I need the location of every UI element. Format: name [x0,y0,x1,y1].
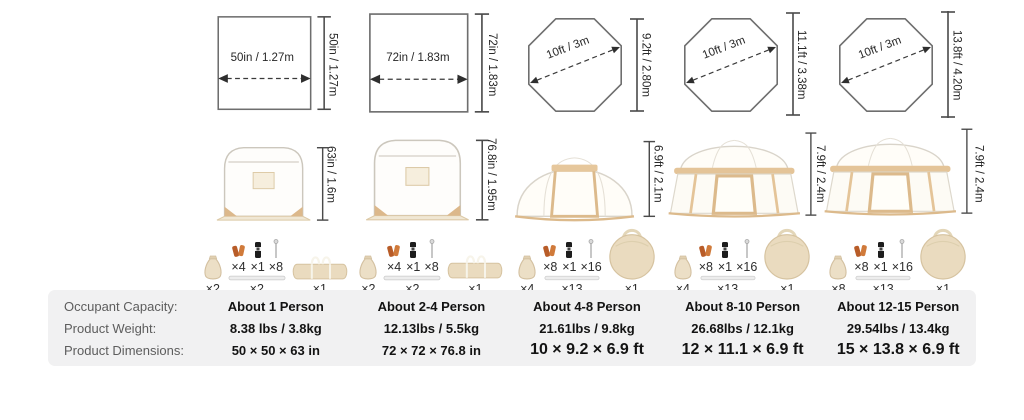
connector-icon [876,241,886,259]
square-footprint-drawing [365,10,497,120]
tent-image-2: 76.8in / 1.95m [354,122,509,226]
stakes-item: ×4 [386,243,402,274]
dome-tent-drawing [511,132,663,224]
footprint-diagram-4: 10ft / 3m 11.1ft / 3.38m [665,8,820,122]
stakes-qty: ×8 [543,260,557,274]
footprint-diagram-1: 50in / 1.27m 50in / 1.27m [198,8,353,122]
pole-icon [855,275,911,281]
tent-height-label: 6.9ft / 2.1m [651,122,663,226]
stakes-item: ×4 [231,243,247,274]
weight-value-5: 29.54lbs / 13.4kg [820,321,976,336]
connector-item: ×1 [406,241,420,274]
connector-qty: ×1 [251,260,265,274]
ground-nails-item: ×16 [892,239,913,274]
ground-nails-qty: ×8 [424,260,438,274]
carry-bag-item: ×1 [606,225,658,296]
capacity-value-3: About 4-8 Person [509,299,665,314]
row-label-dimensions: Product Dimensions: [48,343,198,358]
footprint-width-label: 50in / 1.27m [214,52,310,64]
connector-icon [408,241,418,259]
sandbag-icon [827,253,849,281]
weight-value-4: 26.68lbs / 12.1kg [665,321,821,336]
stakes-item: ×8 [542,243,558,274]
product-column-1: 50in / 1.27m 50in / 1.27m 63in / 1.6m [198,8,354,296]
tent-height-label: 7.9ft / 2.4m [973,122,985,226]
stake-icon [231,243,247,259]
footprint-depth-label: 50in / 1.27m [326,8,338,122]
ground-nails-item: ×8 [269,239,283,274]
round-carry-bag-icon [761,225,813,281]
footprint-depth-label: 9.2ft / 2.80m [639,8,651,122]
pavilion-tent-drawing [665,126,820,224]
spec-table: Occupant Capacity: About 1 Person About … [48,290,976,366]
included-accessories-2: ×2 ×4 [357,230,505,296]
cube-tent-drawing [216,140,336,224]
dimensions-value-4: 12 × 11.1 × 6.9 ft [665,341,821,359]
tent-height-label: 63in / 1.6m [324,122,336,226]
footprint-depth-label: 11.1ft / 3.38m [795,8,807,122]
stakes-qty: ×8 [699,260,713,274]
round-carry-bag-icon [606,225,658,281]
carry-bag-item: ×1 [761,225,813,296]
capacity-value-4: About 8-10 Person [665,299,821,314]
stake-icon [386,243,402,259]
dimensions-value-2: 72 × 72 × 76.8 in [354,343,510,358]
hardware-group: ×8 ×1 [542,239,601,296]
weight-value-3: 21.61lbs / 9.8kg [509,321,665,336]
connector-item: ×1 [873,241,887,274]
pole-icon [700,275,756,281]
connector-item: ×1 [251,241,265,274]
octagon-footprint-drawing [834,11,962,119]
stakes-item: ×8 [698,243,714,274]
sandbag-icon [202,253,224,281]
pole-icon [383,275,441,281]
stakes-item: ×8 [853,243,869,274]
product-column-4: 10ft / 3m 11.1ft / 3.38m [665,8,821,296]
dimensions-value-5: 15 × 13.8 × 6.9 ft [820,341,976,359]
dimensions-value-3: 10 × 9.2 × 6.9 ft [509,341,665,359]
footprint-depth-label: 72in / 1.83m [486,8,498,122]
tent-image-1: 63in / 1.6m [198,122,353,226]
ground-nail-icon [426,239,438,259]
ground-nail-icon [270,239,282,259]
sandbag-icon [672,253,694,281]
product-column-5: 10ft / 3m 13.8ft / 4.20m [820,8,976,296]
capacity-value-1: About 1 Person [198,299,354,314]
hardware-group: ×4 ×1 [228,239,286,296]
stakes-qty: ×8 [854,260,868,274]
tent-size-comparison: 50in / 1.27m 50in / 1.27m 63in / 1.6m [0,0,1024,420]
footprint-diagram-2: 72in / 1.83m 72in / 1.83m [354,8,509,122]
tent-image-5: 7.9ft / 2.4m [821,122,976,226]
ground-nails-item: ×8 [424,239,438,274]
carry-bag-icon [445,251,505,281]
carry-bag-item: ×1 [917,225,969,296]
hardware-group: ×8 ×1 [853,239,912,296]
footprint-width-label: 72in / 1.83m [370,52,466,64]
footprint-diagram-5: 10ft / 3m 13.8ft / 4.20m [821,8,976,122]
connector-icon [564,241,574,259]
footprint-depth-label: 13.8ft / 4.20m [951,8,963,122]
stakes-qty: ×4 [387,260,401,274]
connector-qty: ×1 [406,260,420,274]
row-label-weight: Product Weight: [48,321,198,336]
connector-item: ×1 [718,241,732,274]
sandbag-icon [357,253,379,281]
ground-nail-icon [741,239,753,259]
ground-nails-qty: ×16 [581,260,602,274]
connector-qty: ×1 [873,260,887,274]
octagon-footprint-drawing [523,11,651,119]
connector-qty: ×1 [562,260,576,274]
connector-icon [253,241,263,259]
cube-tent-drawing [365,132,497,224]
stake-icon [542,243,558,259]
pole-icon [544,275,600,281]
weight-value-2: 12.13lbs / 5.5kg [354,321,510,336]
hardware-group: ×4 ×1 [383,239,441,296]
connector-icon [720,241,730,259]
ground-nails-qty: ×16 [736,260,757,274]
stakes-qty: ×4 [231,260,245,274]
ground-nails-item: ×16 [736,239,757,274]
product-column-2: 72in / 1.83m 72in / 1.83m 76.8in / 1.95m [354,8,510,296]
hardware-group: ×8 ×1 [698,239,757,296]
footprint-diagram-3: 10ft / 3m 9.2ft / 2.80m [509,8,664,122]
ground-nails-qty: ×8 [269,260,283,274]
ground-nail-icon [896,239,908,259]
carry-bag-icon [290,253,350,281]
round-carry-bag-icon [917,225,969,281]
dimensions-value-1: 50 × 50 × 63 in [198,343,354,358]
sandbag-icon [516,253,538,281]
connector-qty: ×1 [718,260,732,274]
ground-nail-icon [585,239,597,259]
tent-image-4: 7.9ft / 2.4m [665,122,820,226]
tent-height-label: 76.8in / 1.95m [485,122,497,226]
stake-icon [698,243,714,259]
weight-value-1: 8.38 lbs / 3.8kg [198,321,354,336]
included-accessories-1: ×2 ×4 [202,230,350,296]
ground-nails-item: ×16 [581,239,602,274]
pavilion-tent-drawing [821,122,976,224]
capacity-value-5: About 12-15 Person [820,299,976,314]
included-accessories-3: ×4 ×8 [516,230,657,296]
ground-nails-qty: ×16 [892,260,913,274]
square-footprint-drawing [214,13,338,117]
product-column-3: 10ft / 3m 9.2ft / 2.80m 6.9ft / 2.1m [509,8,665,296]
tent-image-3: 6.9ft / 2.1m [509,122,664,226]
included-accessories-4: ×4 ×8 [672,230,813,296]
pole-icon [228,275,286,281]
octagon-footprint-drawing [679,11,807,119]
product-columns: 50in / 1.27m 50in / 1.27m 63in / 1.6m [198,8,976,296]
connector-item: ×1 [562,241,576,274]
included-accessories-5: ×8 ×8 [827,230,968,296]
row-label-capacity: Occupant Capacity: [48,299,198,314]
capacity-value-2: About 2-4 Person [354,299,510,314]
stake-icon [853,243,869,259]
